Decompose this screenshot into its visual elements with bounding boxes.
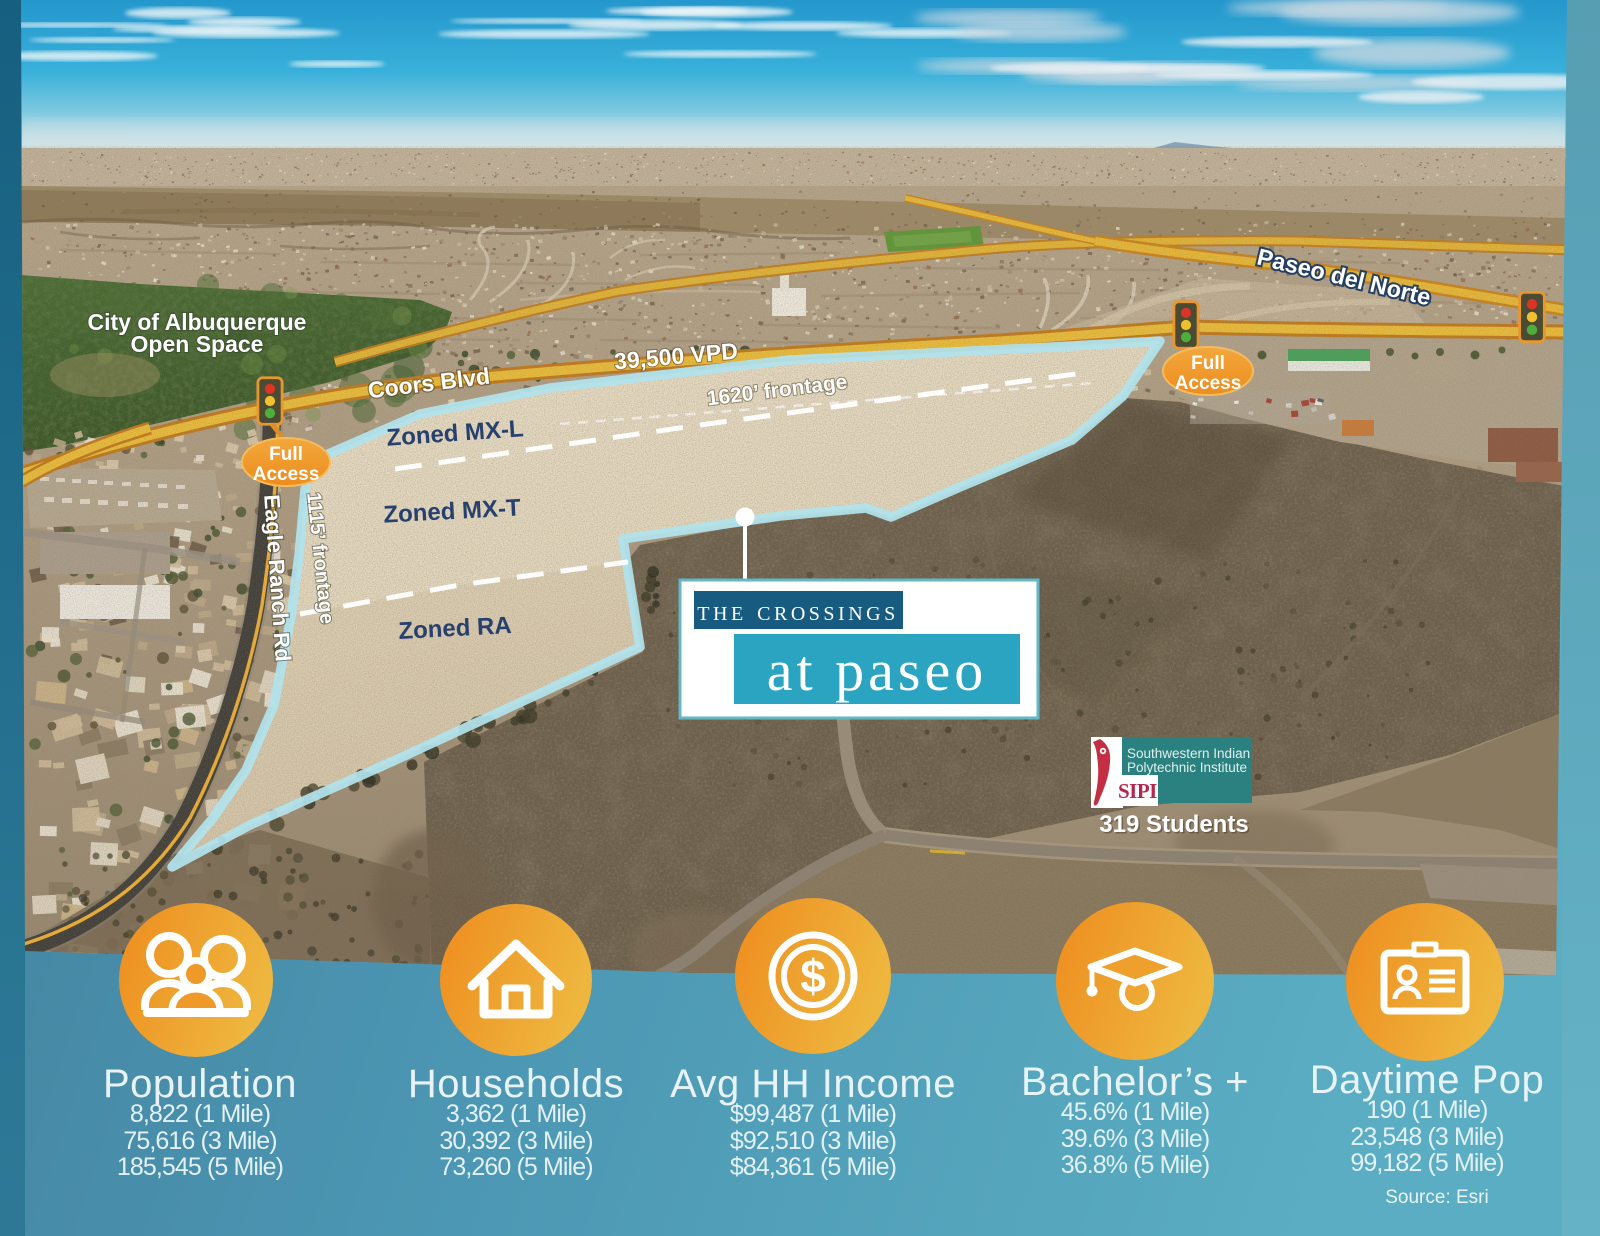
svg-text:319 Students: 319 Students	[1099, 811, 1248, 838]
svg-text:at paseo: at paseo	[767, 638, 987, 703]
svg-text:Southwestern Indian: Southwestern Indian	[1127, 746, 1250, 761]
svg-text:Full: Full	[1191, 353, 1225, 374]
svg-text:Full: Full	[269, 444, 303, 465]
svg-text:Source: Esri: Source: Esri	[1385, 1187, 1488, 1208]
svg-text:Access: Access	[253, 464, 320, 485]
svg-text:Polytechnic Institute: Polytechnic Institute	[1127, 760, 1247, 775]
svg-text:Open Space: Open Space	[131, 331, 264, 357]
svg-text:$: $	[800, 950, 826, 1002]
svg-text:the crossings: the crossings	[697, 596, 898, 627]
svg-text:SIPI: SIPI	[1118, 779, 1157, 803]
svg-text:Access: Access	[1175, 373, 1242, 394]
